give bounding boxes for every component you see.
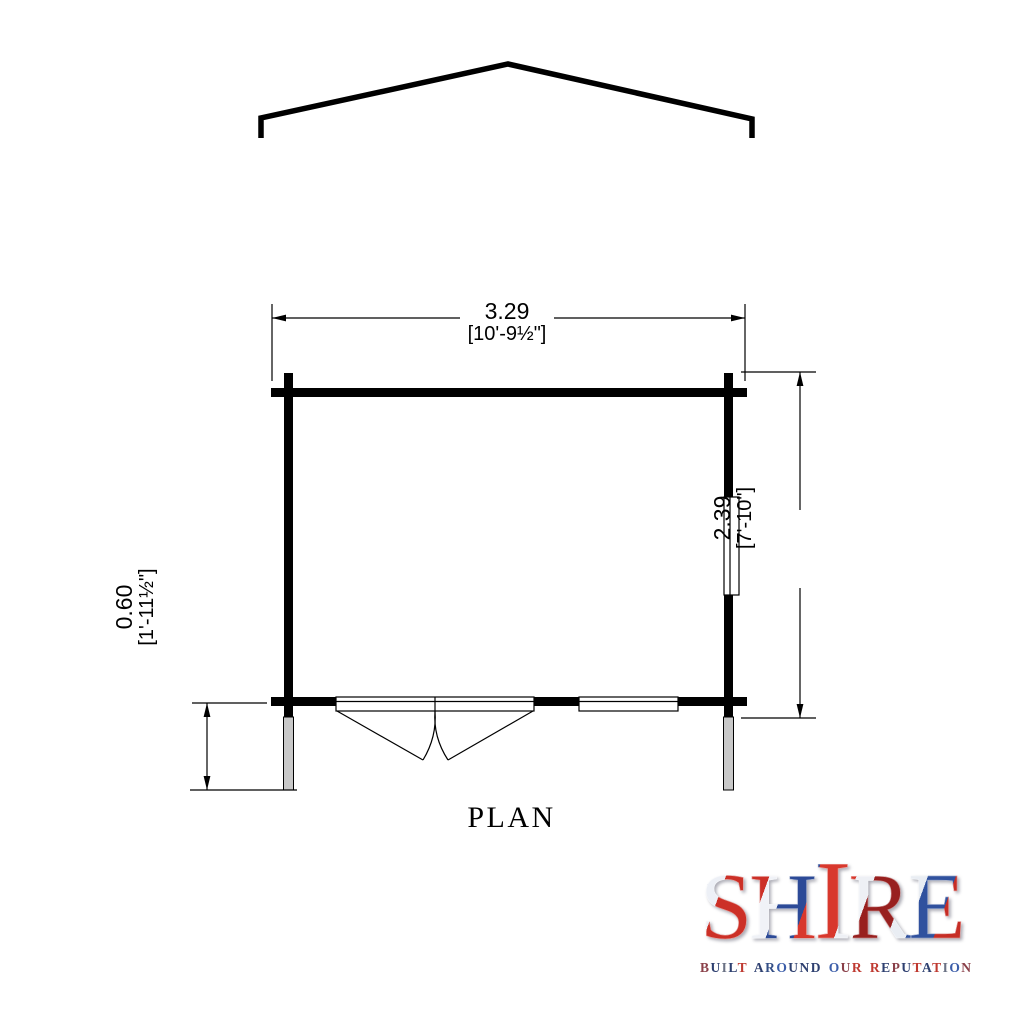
logo-letter-e: E bbox=[908, 855, 962, 959]
dimension-width-imperial: [10'-9½"] bbox=[382, 324, 632, 346]
dimension-overhang-imperial: [1'-11½"] bbox=[137, 522, 159, 692]
logo-letter-r: R bbox=[848, 855, 908, 959]
logo-letter-i: I bbox=[814, 839, 848, 963]
canopy-posts bbox=[284, 717, 734, 790]
dimension-depth-metric: 2.39 bbox=[710, 438, 735, 598]
dimension-depth: 2.39 [7'-10"] bbox=[710, 438, 756, 598]
dimension-overhang-metric: 0.60 bbox=[112, 522, 137, 692]
dimension-width-metric: 3.29 bbox=[382, 299, 632, 324]
front-double-door bbox=[336, 697, 534, 760]
dimension-width: 3.29 [10'-9½"] bbox=[382, 299, 632, 345]
roof-profile-outline bbox=[261, 64, 752, 138]
plan-title: PLAN bbox=[409, 801, 614, 835]
logo-letter-h: H bbox=[749, 855, 814, 959]
shire-logo: SHIRE BUILT AROUND OUR REPUTATION bbox=[700, 845, 970, 976]
dimension-overhang: 0.60 [1'-11½"] bbox=[112, 522, 158, 692]
logo-letter-s: S bbox=[700, 855, 749, 959]
dimension-depth-imperial: [7'-10"] bbox=[735, 438, 757, 598]
front-window bbox=[579, 697, 678, 711]
floor-plan-walls bbox=[271, 373, 747, 717]
shire-logo-word: SHIRE bbox=[700, 845, 970, 957]
drawing-page: 3.29 [10'-9½"] 2.39 [7'-10"] 0.60 [1'-11… bbox=[0, 0, 1024, 1024]
